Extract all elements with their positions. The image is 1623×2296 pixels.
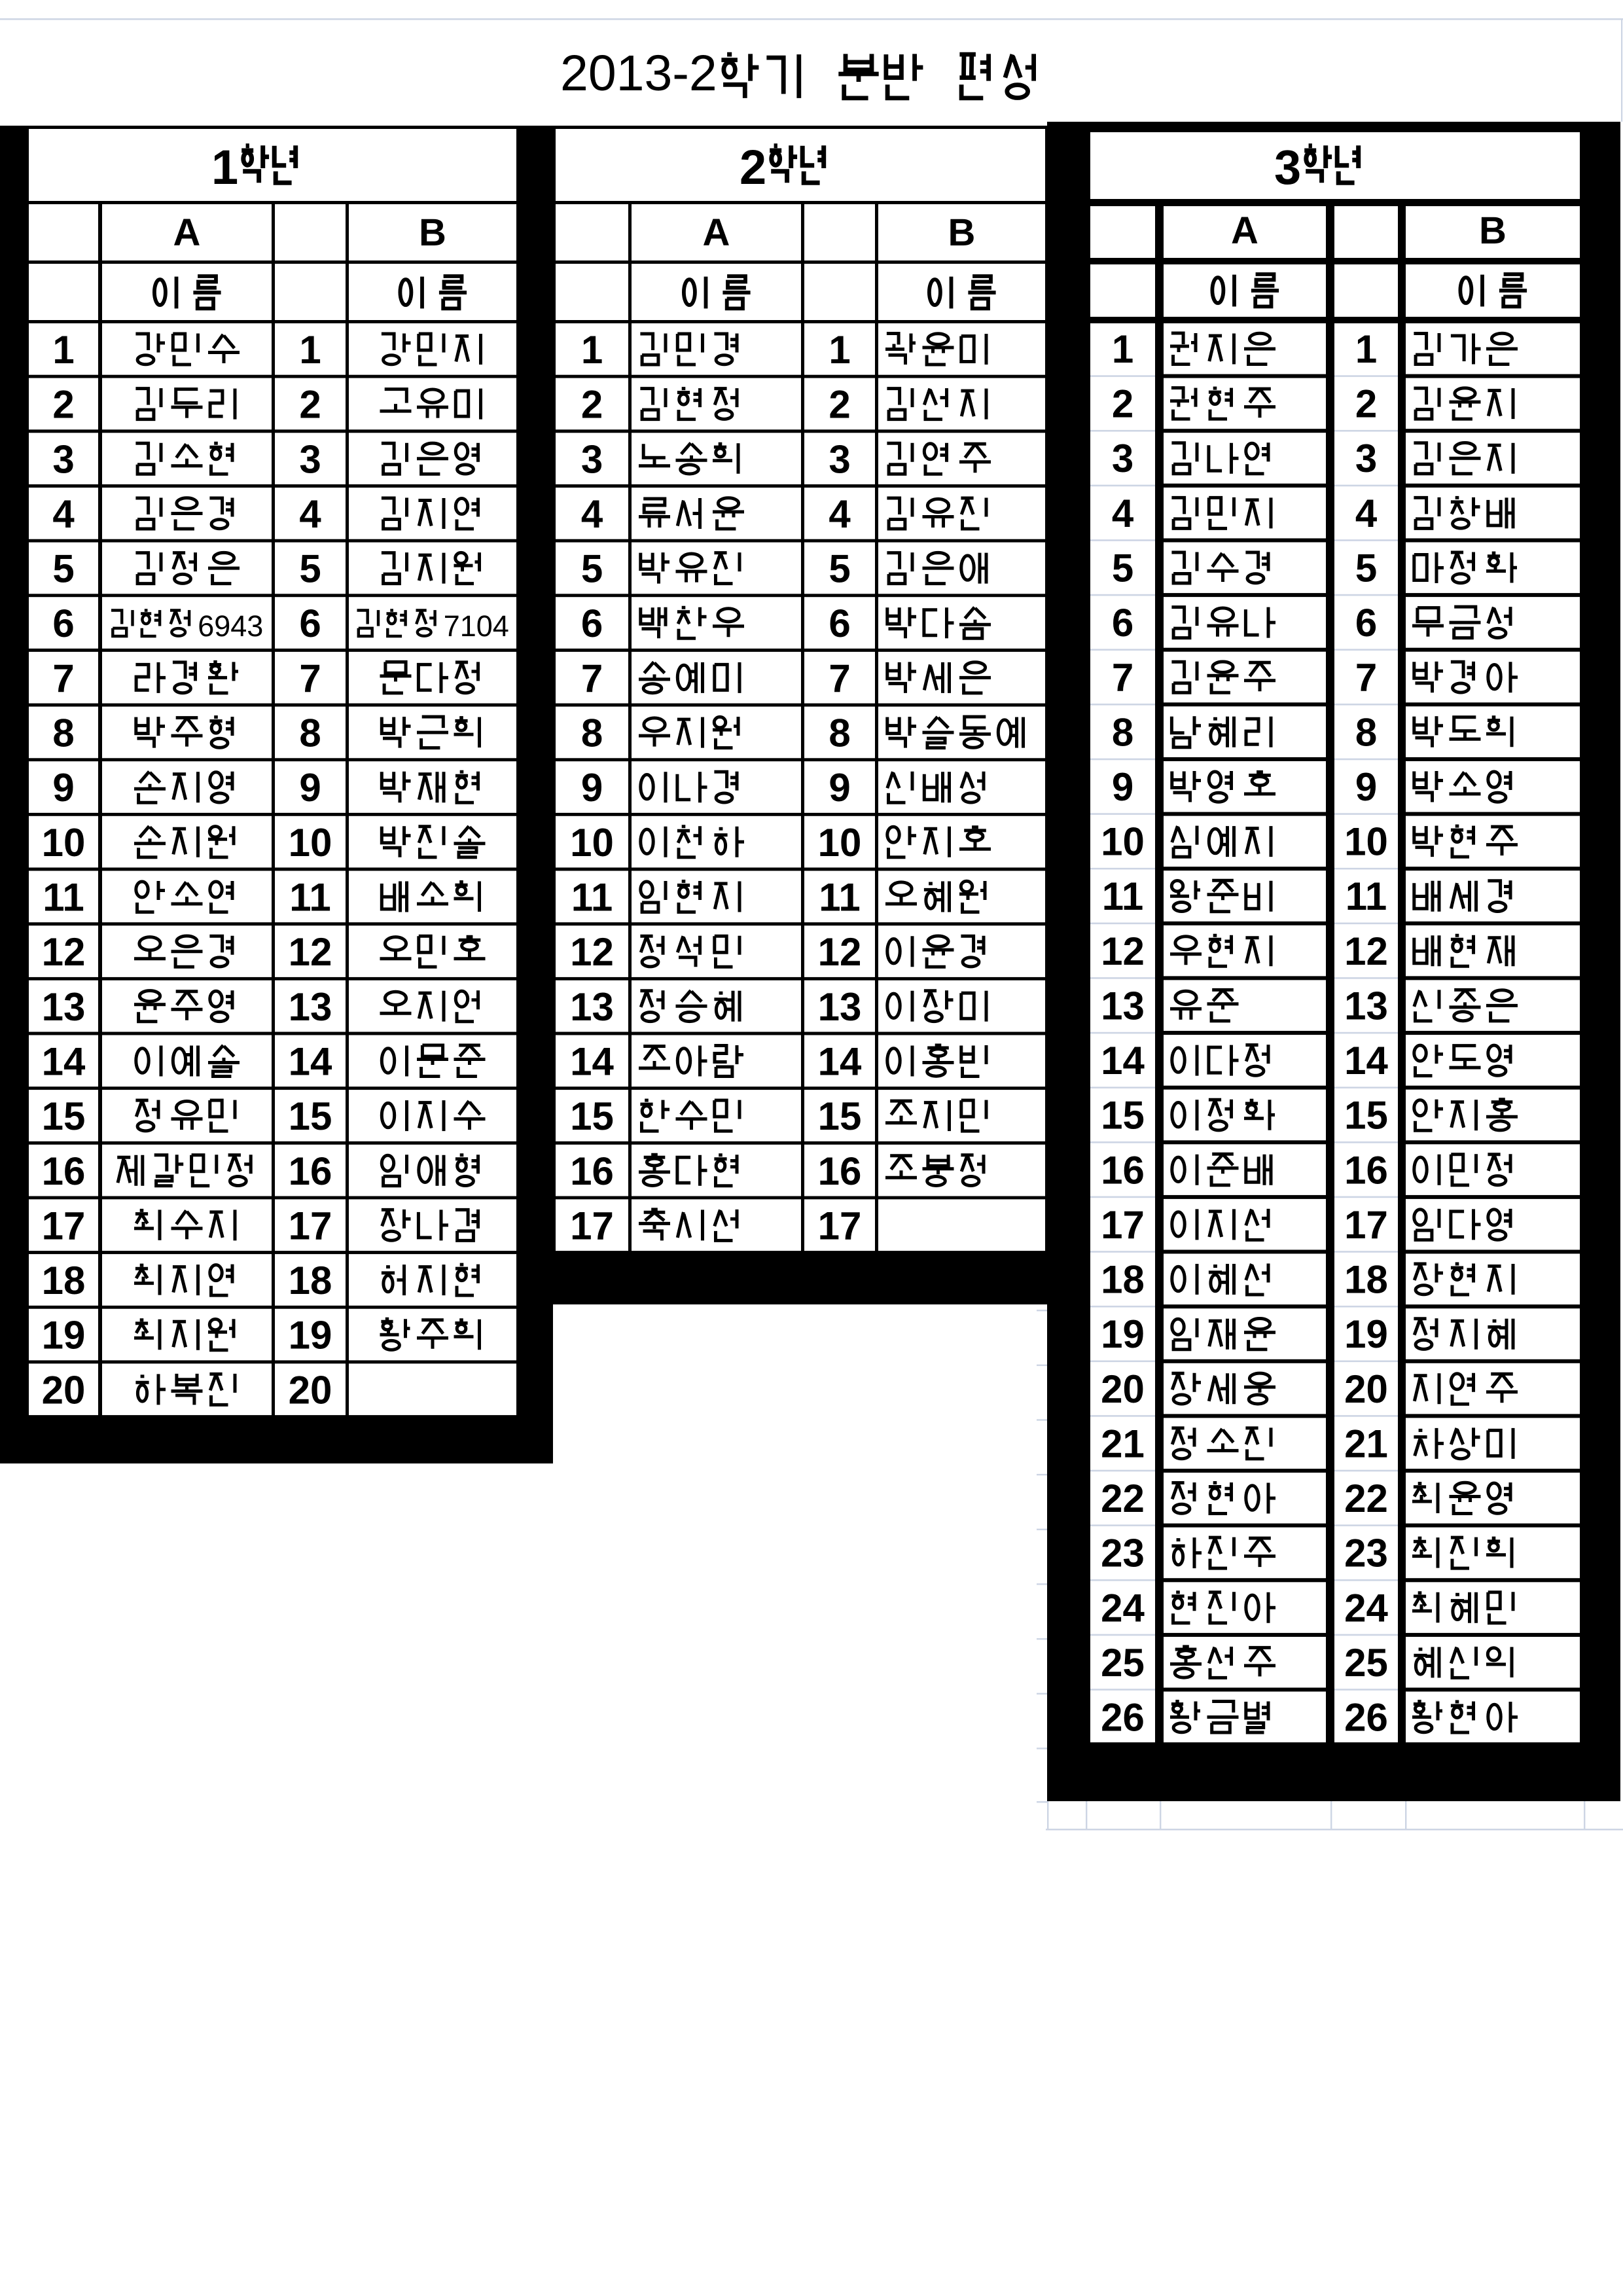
svg-text:5: 5 — [829, 547, 850, 591]
svg-text:11: 11 — [819, 876, 860, 920]
svg-text:5: 5 — [1355, 547, 1377, 590]
svg-text:8: 8 — [52, 711, 74, 755]
svg-text:17: 17 — [1101, 1203, 1145, 1247]
svg-text:4: 4 — [1112, 492, 1134, 535]
svg-text:5: 5 — [52, 547, 74, 591]
svg-text:13: 13 — [1101, 984, 1145, 1028]
svg-text:14: 14 — [42, 1040, 86, 1084]
svg-text:16: 16 — [289, 1149, 332, 1193]
svg-text:1: 1 — [1355, 327, 1377, 371]
svg-text:24: 24 — [1344, 1586, 1388, 1630]
svg-text:20: 20 — [289, 1368, 332, 1412]
svg-text:21: 21 — [1101, 1422, 1145, 1465]
svg-text:12: 12 — [570, 930, 614, 974]
svg-text:B: B — [1479, 209, 1507, 252]
svg-text:3: 3 — [52, 437, 74, 481]
svg-text:25: 25 — [1344, 1641, 1388, 1685]
svg-text:6: 6 — [581, 601, 603, 645]
svg-text:A: A — [703, 211, 730, 254]
svg-text:2: 2 — [52, 383, 74, 427]
svg-text:16: 16 — [42, 1149, 86, 1193]
svg-text:1: 1 — [829, 328, 850, 372]
svg-text:16: 16 — [570, 1149, 614, 1193]
svg-text:11: 11 — [1102, 874, 1143, 918]
svg-text:9: 9 — [829, 766, 850, 810]
svg-text:3: 3 — [581, 437, 603, 481]
svg-text:2: 2 — [740, 140, 766, 194]
svg-text:4: 4 — [299, 492, 321, 536]
svg-text:A: A — [173, 211, 201, 254]
svg-text:12: 12 — [1344, 929, 1388, 973]
svg-text:8: 8 — [1112, 710, 1133, 754]
svg-text:4: 4 — [1355, 492, 1378, 535]
svg-text:2: 2 — [299, 383, 321, 427]
svg-text:5: 5 — [1112, 547, 1133, 590]
svg-text:11: 11 — [571, 876, 613, 920]
svg-text:6: 6 — [52, 601, 74, 645]
svg-text:22: 22 — [1101, 1477, 1145, 1520]
svg-text:20: 20 — [1344, 1367, 1388, 1411]
svg-text:6943: 6943 — [198, 609, 263, 643]
svg-text:1: 1 — [211, 140, 238, 194]
svg-text:4: 4 — [829, 492, 851, 536]
svg-text:16: 16 — [1344, 1148, 1388, 1192]
svg-text:17: 17 — [818, 1204, 862, 1247]
svg-text:2: 2 — [1112, 382, 1133, 426]
svg-text:4: 4 — [52, 492, 75, 536]
svg-text:16: 16 — [818, 1149, 862, 1193]
svg-text:6: 6 — [829, 601, 850, 645]
svg-text:13: 13 — [289, 985, 332, 1029]
svg-text:A: A — [1231, 209, 1258, 252]
svg-text:26: 26 — [1101, 1696, 1145, 1740]
svg-text:20: 20 — [1101, 1367, 1145, 1411]
svg-text:22: 22 — [1344, 1477, 1388, 1520]
svg-text:8: 8 — [829, 711, 850, 755]
svg-text:2013-2: 2013-2 — [560, 45, 717, 101]
svg-text:11: 11 — [43, 876, 84, 920]
svg-text:10: 10 — [289, 821, 332, 865]
svg-text:7: 7 — [299, 656, 321, 700]
svg-text:11: 11 — [289, 876, 330, 920]
svg-text:2: 2 — [1355, 382, 1377, 426]
svg-text:10: 10 — [570, 821, 614, 865]
svg-text:13: 13 — [818, 985, 862, 1029]
svg-text:7: 7 — [1355, 656, 1377, 700]
svg-text:13: 13 — [570, 985, 614, 1029]
svg-text:19: 19 — [1101, 1312, 1145, 1356]
svg-text:12: 12 — [1101, 929, 1145, 973]
svg-text:11: 11 — [1346, 874, 1387, 918]
svg-text:17: 17 — [42, 1204, 86, 1247]
svg-text:1: 1 — [52, 328, 74, 372]
svg-text:7: 7 — [829, 656, 850, 700]
svg-text:9: 9 — [1355, 765, 1377, 809]
svg-text:24: 24 — [1101, 1586, 1145, 1630]
svg-text:3: 3 — [1274, 140, 1301, 194]
svg-text:1: 1 — [581, 328, 603, 372]
svg-text:16: 16 — [1101, 1148, 1145, 1192]
svg-text:2: 2 — [581, 383, 603, 427]
svg-text:5: 5 — [581, 547, 603, 591]
svg-text:8: 8 — [581, 711, 603, 755]
svg-text:23: 23 — [1344, 1532, 1388, 1575]
svg-text:10: 10 — [818, 821, 862, 865]
svg-text:18: 18 — [1344, 1258, 1388, 1302]
svg-text:6: 6 — [1355, 601, 1377, 645]
svg-text:7: 7 — [52, 656, 74, 700]
svg-text:10: 10 — [1344, 820, 1388, 864]
svg-text:6: 6 — [1112, 601, 1133, 645]
svg-text:8: 8 — [1355, 710, 1377, 754]
svg-text:7104: 7104 — [444, 609, 509, 643]
svg-text:21: 21 — [1344, 1422, 1388, 1465]
svg-text:2: 2 — [829, 383, 850, 427]
svg-text:14: 14 — [818, 1040, 862, 1084]
svg-text:14: 14 — [1101, 1039, 1145, 1083]
svg-text:10: 10 — [1101, 820, 1145, 864]
svg-text:4: 4 — [581, 492, 603, 536]
svg-text:B: B — [419, 211, 446, 254]
svg-text:B: B — [948, 211, 976, 254]
svg-text:1: 1 — [1112, 327, 1133, 371]
svg-text:25: 25 — [1101, 1641, 1145, 1685]
svg-text:23: 23 — [1101, 1532, 1145, 1575]
svg-text:17: 17 — [289, 1204, 332, 1247]
svg-text:15: 15 — [42, 1094, 86, 1138]
svg-text:8: 8 — [299, 711, 321, 755]
svg-text:15: 15 — [818, 1094, 862, 1138]
svg-text:19: 19 — [289, 1314, 332, 1357]
svg-text:6: 6 — [299, 601, 321, 645]
svg-text:15: 15 — [1101, 1094, 1145, 1138]
svg-text:3: 3 — [1355, 437, 1377, 480]
svg-text:3: 3 — [299, 437, 321, 481]
svg-text:19: 19 — [42, 1314, 86, 1357]
svg-text:1: 1 — [299, 328, 321, 372]
svg-text:17: 17 — [570, 1204, 614, 1247]
svg-text:18: 18 — [42, 1259, 86, 1302]
svg-text:14: 14 — [1344, 1039, 1388, 1083]
svg-text:14: 14 — [289, 1040, 332, 1084]
svg-text:15: 15 — [570, 1094, 614, 1138]
svg-text:18: 18 — [1101, 1258, 1145, 1302]
svg-text:10: 10 — [42, 821, 86, 865]
svg-text:15: 15 — [289, 1094, 332, 1138]
svg-text:12: 12 — [289, 930, 332, 974]
svg-text:19: 19 — [1344, 1312, 1388, 1356]
svg-text:9: 9 — [1112, 765, 1133, 809]
svg-text:7: 7 — [581, 656, 603, 700]
svg-text:13: 13 — [1344, 984, 1388, 1028]
svg-text:12: 12 — [818, 930, 862, 974]
svg-text:26: 26 — [1344, 1696, 1388, 1740]
svg-text:15: 15 — [1344, 1094, 1388, 1138]
svg-text:7: 7 — [1112, 656, 1133, 700]
svg-text:9: 9 — [581, 766, 603, 810]
svg-text:13: 13 — [42, 985, 86, 1029]
svg-text:3: 3 — [1112, 437, 1133, 480]
svg-text:9: 9 — [52, 766, 74, 810]
svg-text:5: 5 — [299, 547, 321, 591]
svg-text:3: 3 — [829, 437, 850, 481]
svg-text:14: 14 — [570, 1040, 614, 1084]
svg-text:9: 9 — [299, 766, 321, 810]
svg-text:12: 12 — [42, 930, 86, 974]
svg-text:17: 17 — [1344, 1203, 1388, 1247]
svg-text:18: 18 — [289, 1259, 332, 1302]
svg-text:20: 20 — [42, 1368, 86, 1412]
